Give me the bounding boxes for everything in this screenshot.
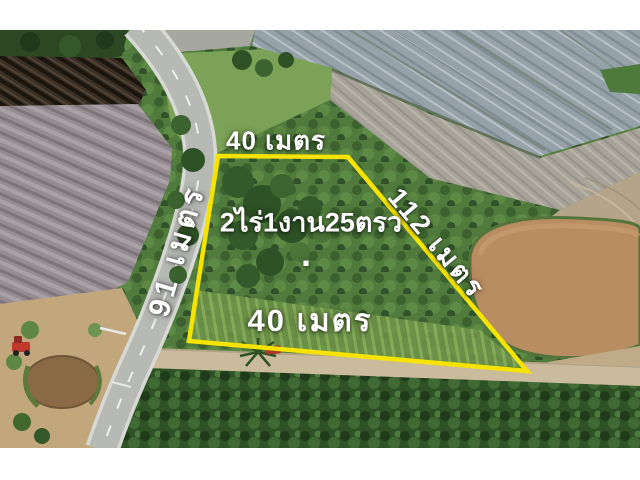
- letterbox-bottom: [0, 448, 640, 480]
- letterbox-top: [0, 0, 640, 30]
- screenshot-root: 40 เมตร 2ไร่1งาน25ตรว . 40 เมตร 112 เมตร…: [0, 0, 640, 480]
- aerial-photo: 40 เมตร 2ไร่1งาน25ตรว . 40 เมตร 112 เมตร…: [0, 30, 640, 448]
- farm-pond: [25, 356, 100, 408]
- plowed-field-dark: [0, 56, 146, 108]
- label-bottom-width: 40 เมตร: [248, 295, 373, 345]
- label-top-width: 40 เมตร: [226, 121, 326, 162]
- label-area-size: 2ไร่1งาน25ตรว: [220, 201, 402, 244]
